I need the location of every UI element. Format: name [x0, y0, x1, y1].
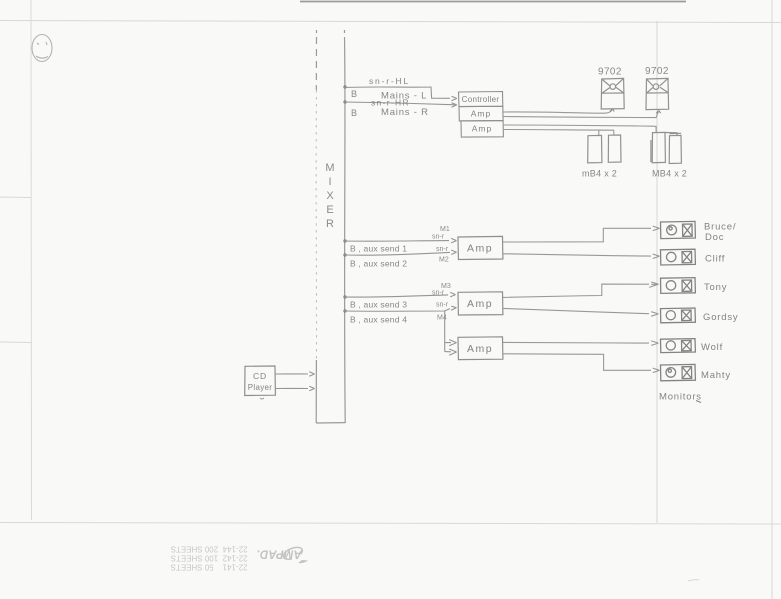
svg-text:Doc: Doc	[705, 232, 724, 243]
svg-text:Gordsy: Gordsy	[703, 312, 738, 323]
svg-text:Mahty: Mahty	[701, 370, 731, 381]
svg-text:sn-r: sn-r	[432, 290, 445, 297]
svg-text:sn-r: sn-r	[436, 246, 449, 253]
svg-text:Amp: Amp	[467, 298, 493, 310]
svg-text:sn-r: sn-r	[436, 302, 449, 309]
svg-text:B , aux send 1: B , aux send 1	[350, 244, 407, 254]
svg-text:Controller: Controller	[462, 95, 500, 104]
svg-text:R: R	[326, 218, 334, 230]
svg-text:22-142 100 SHEETS: 22-142 100 SHEETS	[171, 554, 248, 563]
svg-text:MB4 x 2: MB4 x 2	[652, 169, 687, 179]
svg-text:9702: 9702	[598, 67, 622, 78]
svg-text:B , aux send 3: B , aux send 3	[350, 300, 407, 310]
svg-text:22-141 50 SHEETS: 22-141 50 SHEETS	[171, 562, 248, 571]
svg-text:mB4 x 2: mB4 x 2	[582, 169, 617, 179]
svg-text:Mains - R: Mains - R	[381, 107, 429, 118]
svg-text:9702: 9702	[645, 66, 669, 77]
svg-text:CD: CD	[253, 371, 267, 381]
svg-text:22-144 200 SHEETS: 22-144 200 SHEETS	[171, 544, 248, 553]
svg-text:AMPAD.: AMPAD.	[256, 548, 303, 560]
svg-text:Amp: Amp	[467, 343, 493, 355]
svg-text:Wolf: Wolf	[701, 342, 723, 353]
svg-text:Amp: Amp	[467, 243, 493, 255]
svg-text:E: E	[326, 204, 333, 216]
svg-text:Amp: Amp	[471, 109, 491, 119]
svg-text:B , aux send 4: B , aux send 4	[350, 315, 407, 325]
svg-text:Player: Player	[248, 383, 273, 392]
svg-text:B: B	[351, 108, 357, 118]
svg-text:M4: M4	[437, 315, 447, 322]
svg-text:M: M	[325, 162, 334, 174]
svg-text:I: I	[328, 176, 331, 188]
svg-text:sn-r: sn-r	[432, 234, 445, 241]
svg-text:Tony: Tony	[704, 282, 727, 293]
svg-text:sn-r-HL: sn-r-HL	[369, 76, 410, 86]
svg-text:B: B	[351, 89, 357, 99]
svg-text:X: X	[326, 190, 334, 202]
svg-text:M1: M1	[440, 226, 450, 233]
svg-text:sn-r-HR: sn-r-HR	[371, 98, 410, 108]
svg-text:M2: M2	[439, 257, 449, 264]
svg-text:Cliff: Cliff	[705, 254, 725, 265]
svg-text:B , aux send 2: B , aux send 2	[350, 259, 407, 269]
svg-text:Amp: Amp	[472, 124, 492, 134]
svg-text:Monitors: Monitors	[659, 392, 702, 403]
